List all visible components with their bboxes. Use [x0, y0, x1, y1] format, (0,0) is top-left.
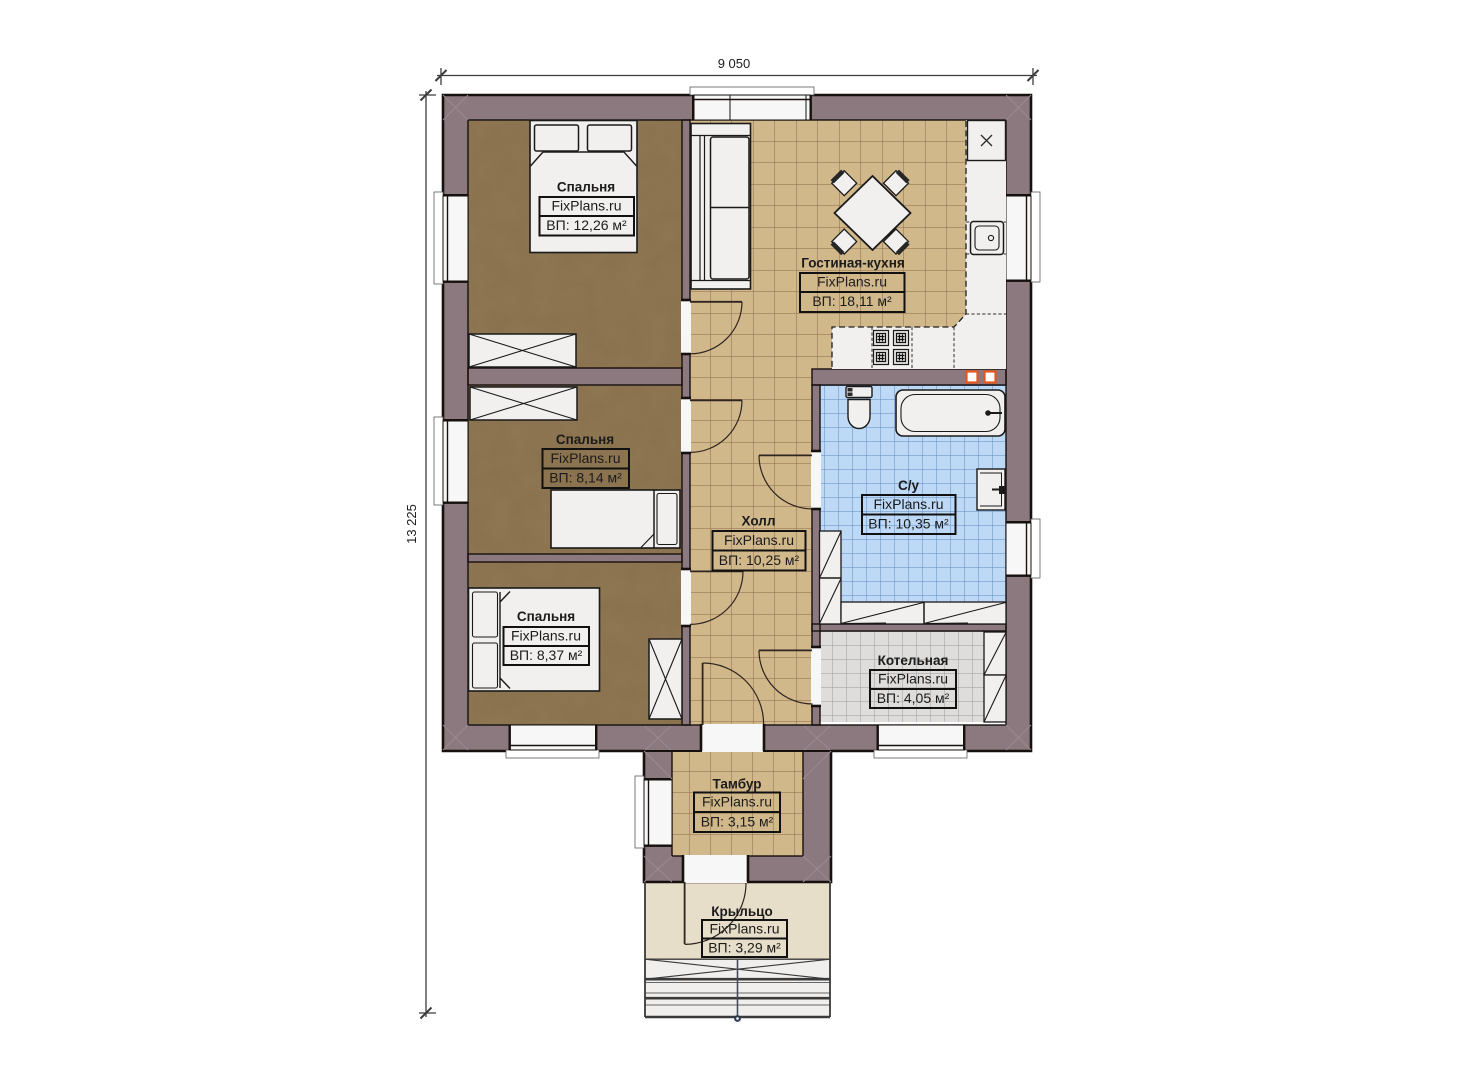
svg-text:Гостиная-кухня: Гостиная-кухня [801, 256, 904, 271]
svg-text:Спальня: Спальня [557, 180, 615, 195]
svg-text:FixPlans.ru: FixPlans.ru [511, 628, 581, 644]
svg-text:ВП: 18,11 м²: ВП: 18,11 м² [812, 293, 892, 309]
svg-text:ВП: 4,05 м²: ВП: 4,05 м² [877, 690, 950, 706]
svg-text:ВП: 12,26 м²: ВП: 12,26 м² [546, 217, 627, 233]
svg-text:FixPlans.ru: FixPlans.ru [551, 198, 621, 214]
svg-text:ВП: 10,25 м²: ВП: 10,25 м² [719, 552, 800, 568]
svg-text:ВП: 10,35 м²: ВП: 10,35 м² [868, 516, 949, 532]
svg-text:9 050: 9 050 [718, 56, 751, 71]
svg-text:ВП: 8,37 м²: ВП: 8,37 м² [510, 647, 583, 663]
svg-text:Холл: Холл [742, 514, 776, 529]
svg-text:FixPlans.ru: FixPlans.ru [873, 496, 943, 512]
svg-text:FixPlans.ru: FixPlans.ru [724, 532, 794, 548]
svg-text:FixPlans.ru: FixPlans.ru [817, 274, 887, 290]
svg-text:С/у: С/у [898, 478, 920, 493]
svg-text:ВП: 3,15 м²: ВП: 3,15 м² [701, 814, 774, 830]
svg-text:ВП: 8,14 м²: ВП: 8,14 м² [549, 470, 622, 486]
svg-text:FixPlans.ru: FixPlans.ru [709, 921, 779, 937]
svg-text:FixPlans.ru: FixPlans.ru [878, 671, 948, 687]
svg-text:Котельная: Котельная [878, 653, 949, 668]
svg-text:Спальня: Спальня [517, 609, 575, 624]
svg-text:FixPlans.ru: FixPlans.ru [550, 450, 620, 466]
svg-text:Тамбур: Тамбур [713, 777, 762, 792]
svg-text:13 225: 13 225 [404, 504, 419, 544]
svg-text:FixPlans.ru: FixPlans.ru [702, 794, 772, 810]
svg-text:ВП: 3,29 м²: ВП: 3,29 м² [708, 940, 781, 956]
svg-text:Спальня: Спальня [556, 432, 614, 447]
svg-text:Крыльцо: Крыльцо [711, 904, 772, 919]
